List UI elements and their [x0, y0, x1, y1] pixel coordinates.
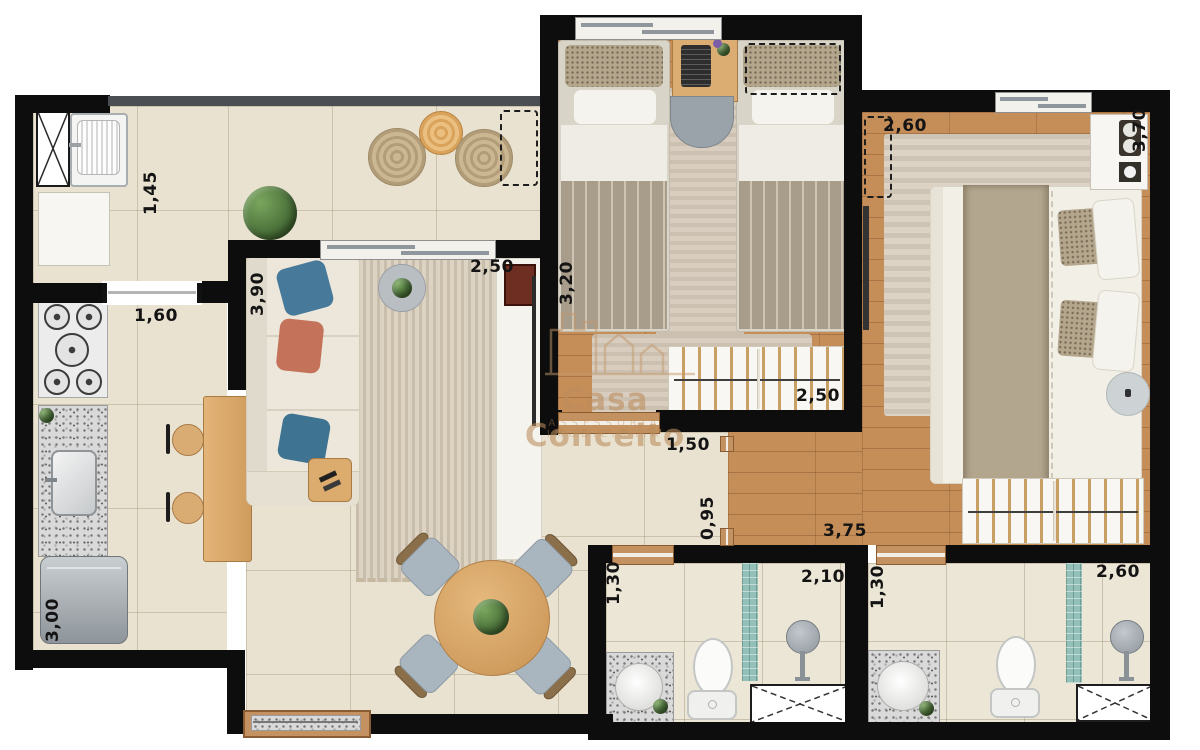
pillow-terracotta [275, 318, 324, 374]
coffee-table [308, 458, 352, 502]
bed1-sheet-fold [561, 125, 667, 181]
dim-bath2-depth: 1,30 [869, 564, 887, 610]
bath2-sink-counter [868, 650, 940, 724]
dim-living-window: 2,50 [469, 258, 515, 276]
dining-window-sill [243, 710, 371, 738]
nightstand-clock [1119, 162, 1141, 182]
laptop [681, 45, 711, 87]
bed2-sheet-fold [739, 125, 845, 181]
sofa-seam [267, 409, 359, 411]
toilet-button [1011, 698, 1020, 707]
dim-master-head-wall: 2,60 [882, 117, 928, 135]
laundry-tank [70, 113, 128, 187]
window-sash [327, 245, 415, 249]
bar-stool-1 [172, 424, 204, 456]
window-sash [1000, 97, 1048, 101]
bed2-duvet [739, 181, 845, 329]
window-sash [1038, 104, 1086, 108]
kitchen-plant [39, 408, 54, 423]
bath2-mosaic-strip [1066, 563, 1082, 683]
kitchen-faucet [45, 478, 57, 482]
watermark-skyline-icon [545, 300, 695, 380]
dim-bath2-width: 2,60 [1095, 563, 1141, 581]
wall-service-divider [15, 283, 102, 303]
bar-stool-1-back [166, 424, 170, 454]
kitchen-door-opening [102, 281, 202, 305]
master-wardrobe [962, 478, 1144, 544]
dim-master-width: 3,75 [822, 522, 868, 540]
bar-stool-2 [172, 492, 204, 524]
wardrobe-divider [757, 349, 760, 409]
door-track [108, 291, 196, 294]
bath2-toilet [990, 636, 1038, 716]
dim-bath1-depth: 1,30 [605, 560, 623, 606]
wall-bath2-top [944, 545, 1150, 563]
shower-box-x-icon [1078, 686, 1152, 720]
bath1-sink-counter [606, 652, 674, 724]
bar-stool-2-back [166, 492, 170, 522]
terrace-glass-band [108, 96, 542, 106]
wall-bath1-top [672, 545, 845, 563]
master-pouf [1106, 372, 1150, 416]
desk-flowers [713, 39, 722, 48]
burner-icon [76, 369, 102, 395]
wall-topleft-corner [15, 95, 110, 113]
dim-bedroom2-closet: 2,50 [795, 387, 841, 405]
door-jamb [102, 283, 107, 303]
dim-kitchen-depth: 3,00 [44, 597, 62, 643]
master-door-leaf [863, 206, 869, 330]
wall-bedroom2-master-shared [844, 15, 862, 432]
shower-foot [795, 677, 810, 681]
dim-bedroom2-length: 3,20 [558, 260, 576, 306]
side-table-plant [392, 278, 412, 298]
wall-baths-bottom [588, 722, 1170, 740]
toilet-bowl [693, 638, 733, 696]
window-sash [642, 30, 714, 34]
dim-hall-opening: 1,50 [665, 436, 711, 454]
master-window [995, 92, 1092, 113]
bed-foot-band [931, 187, 943, 483]
single-bed-2 [736, 40, 848, 332]
washing-machine [38, 192, 110, 266]
shower-head-icon [1110, 620, 1144, 654]
laundry-faucet [69, 143, 81, 147]
burner-icon [44, 304, 70, 330]
bath1-mosaic-strip [742, 563, 758, 681]
service-shaft [36, 110, 70, 187]
bed-throw-blanket [963, 185, 1049, 485]
wall-living-top-left [228, 240, 320, 258]
hall-door-jamb [720, 436, 734, 452]
bed1-headboard-pillow [565, 45, 663, 87]
wall-left-outer [15, 95, 33, 670]
wall-living-top-right [494, 240, 542, 258]
burner-icon [55, 333, 89, 367]
window-sill-granite [251, 715, 361, 731]
wall-living-left [228, 240, 246, 390]
bath1-shower-head [786, 620, 820, 684]
toilet-button [708, 700, 717, 709]
bath1-shower-box [750, 684, 850, 724]
stove [38, 298, 108, 398]
master-white-pillow-1 [1092, 197, 1141, 280]
side-table [378, 264, 426, 312]
bath1-plant [653, 699, 668, 714]
shower-stem [1124, 651, 1129, 678]
dim-kitchen-opening: 1,60 [133, 307, 179, 325]
bath1-toilet [687, 638, 735, 718]
master-white-pillow-2 [1092, 289, 1141, 372]
window-sash [401, 251, 489, 255]
toilet-bowl [996, 636, 1036, 694]
bed1-pillow [573, 89, 657, 125]
burner-icon [44, 369, 70, 395]
bath2-door-threshold [876, 545, 946, 565]
laundry-basin [77, 120, 120, 175]
shaft-x-icon [38, 112, 68, 185]
window-sash [581, 23, 653, 27]
double-bed [930, 186, 1142, 484]
dim-bath1-width: 2,10 [800, 568, 846, 586]
refrigerator-seam [47, 567, 121, 569]
shower-box-x-icon [752, 686, 848, 722]
bath2-plant [919, 701, 934, 716]
clock-face-icon [1124, 166, 1136, 178]
floor-plan: Casa Conceito ASSESSORIA IMOBILIÁRIA 1,4… [0, 0, 1200, 750]
dining-table-plant [473, 599, 509, 635]
wardrobe-divider [1053, 481, 1056, 541]
wall-baths-divider [845, 545, 868, 722]
kitchen-sink [51, 450, 97, 516]
kitchen-counter [38, 405, 108, 557]
shower-head-icon [786, 620, 820, 654]
dim-living-length: 3,90 [249, 271, 267, 317]
pouf-detail [1125, 389, 1131, 397]
floor-pouf-1 [368, 128, 426, 186]
burner-icon [76, 304, 102, 330]
dim-hall-passage: 0,95 [699, 495, 717, 541]
wall-kitchen-bottom [15, 650, 245, 668]
window-sill-line [253, 721, 357, 723]
shower-foot [1119, 677, 1134, 681]
dim-terrace-depth: 1,45 [142, 170, 160, 216]
hall-door-jamb [720, 528, 734, 546]
terrace-plant [243, 186, 297, 240]
bath2-shower-box [1076, 684, 1154, 722]
kitchen-island [203, 396, 252, 562]
remote-control [323, 479, 341, 491]
bed2-dashed-outline [745, 43, 841, 95]
shower-stem [800, 651, 805, 678]
desk [672, 36, 738, 102]
bedroom2-window [575, 17, 722, 40]
terrace-dashed-furniture [500, 110, 538, 186]
duvet-split-line [1051, 191, 1054, 479]
wall-right-outer [1150, 90, 1170, 740]
bath2-shower-head [1110, 620, 1144, 684]
dim-master-length: 3,70 [1131, 107, 1149, 153]
